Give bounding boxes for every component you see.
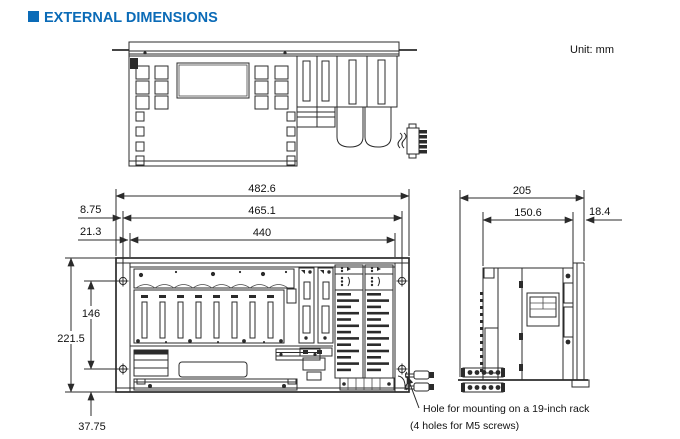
front-view [116, 258, 434, 392]
dim-offset-hole-bottom: 37.75 [78, 421, 106, 433]
front-vent-columns [335, 265, 394, 390]
front-handle-recess [179, 362, 247, 377]
unit-label: Unit: mm [570, 44, 614, 56]
dim-height-mounting-holes: 146 [82, 308, 100, 320]
top-view [112, 42, 427, 166]
top-body [129, 56, 297, 166]
dim-offset-hole-side: 8.75 [80, 204, 101, 216]
side-rear-bracket [563, 256, 589, 387]
page-title-text: EXTERNAL DIMENSIONS [44, 10, 218, 26]
top-display-window [177, 63, 249, 98]
front-width-dimensions: 482.6 465.1 440 8.75 21.3 [78, 183, 409, 276]
break-squiggle-icon [398, 133, 402, 148]
mounting-hole-top-right-icon [397, 276, 408, 287]
dim-width-overall: 482.6 [248, 183, 276, 195]
top-power-connector [398, 124, 427, 158]
page-title: EXTERNAL DIMENSIONS [28, 10, 218, 26]
front-lower-left [134, 349, 320, 390]
mounting-hole-bottom-left-icon [118, 364, 129, 375]
dimensions-diagram: EXTERNAL DIMENSIONS Unit: mm [0, 0, 680, 439]
side-label-plate [527, 293, 559, 326]
side-flange-foot [572, 380, 589, 387]
front-height-dimensions: 221.5 146 37.75 [53, 258, 118, 433]
front-top-rail [134, 269, 294, 288]
title-bullet-icon [28, 11, 39, 22]
dim-offset-body-side: 21.3 [80, 226, 101, 238]
top-edge-vents [136, 112, 295, 165]
external-dimensions-page: EXTERNAL DIMENSIONS Unit: mm [0, 0, 680, 439]
dim-height-overall: 221.5 [57, 333, 85, 345]
dim-depth-overall: 205 [513, 185, 531, 197]
top-modules [297, 56, 397, 147]
note-line2: (4 holes for M5 screws) [410, 420, 519, 432]
break-squiggle-icon [406, 372, 408, 390]
dim-width-body: 440 [253, 227, 271, 239]
mounting-hole-top-left-icon [118, 276, 129, 287]
side-body [519, 268, 559, 380]
dim-width-mounting-holes: 465.1 [248, 205, 276, 217]
card-slot-cage [134, 290, 284, 343]
vent-label-glyphs [341, 267, 381, 286]
top-mounting-rail [112, 42, 417, 56]
note-line1: Hole for mounting on a 19-inch rack [423, 403, 590, 415]
top-vent-squares [136, 66, 288, 109]
top-corner-notch [130, 58, 138, 69]
side-depth-dimensions: 205 150.6 18.4 [460, 185, 622, 266]
dim-flange-offset: 18.4 [589, 206, 610, 218]
mounting-note: Hole for mounting on a 19-inch rack (4 h… [407, 376, 590, 432]
card-slots [141, 295, 274, 338]
dim-depth-body: 150.6 [514, 207, 542, 219]
